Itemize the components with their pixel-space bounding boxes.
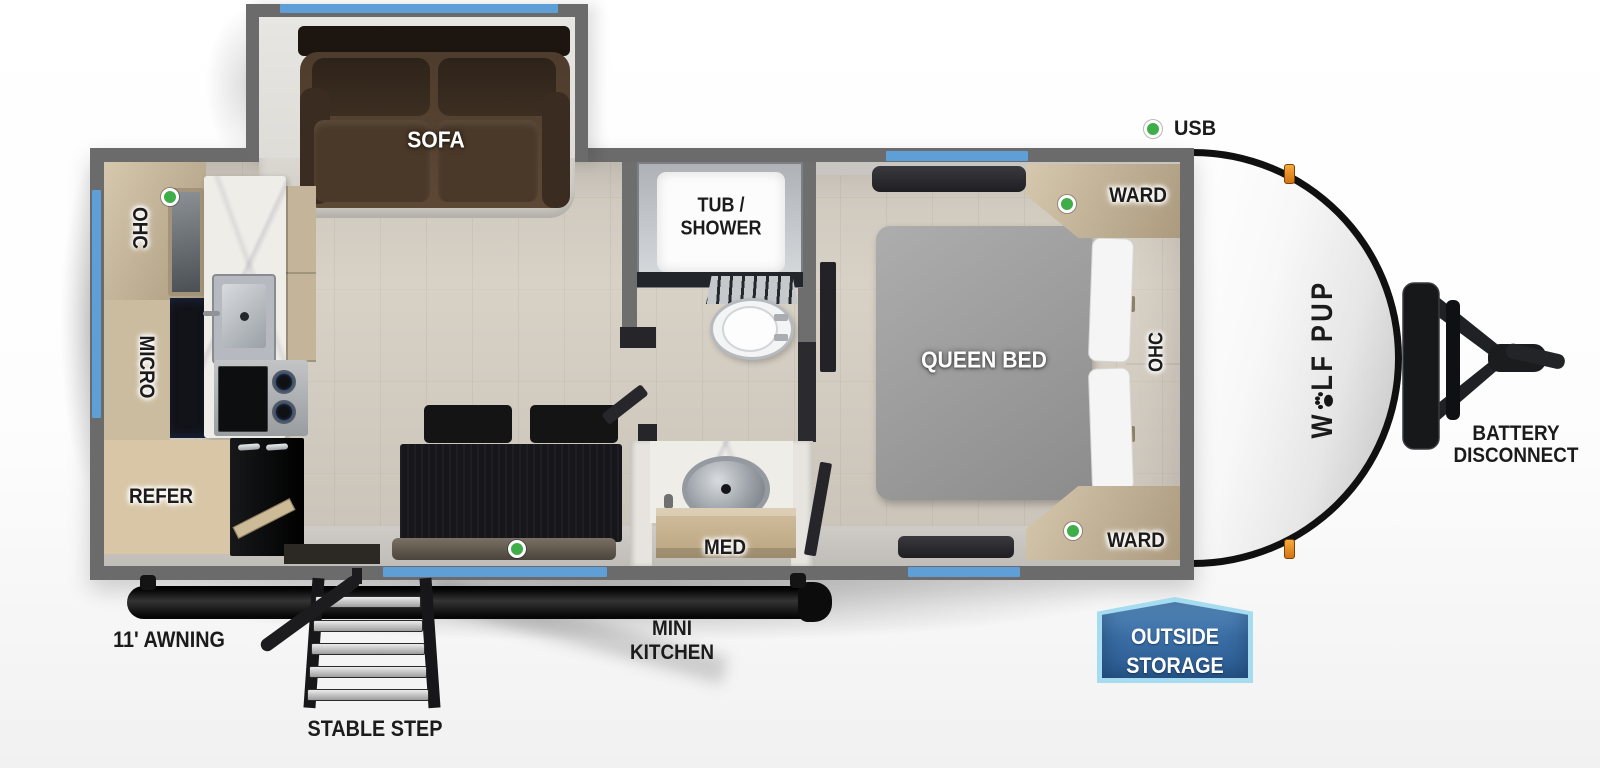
queen-bed-label: QUEEN BED	[921, 347, 1047, 374]
bedroom-door-panel	[820, 262, 836, 372]
ward-top-label: WARD	[1109, 184, 1167, 208]
refer-label: REFER	[129, 485, 193, 509]
refrigerator	[230, 438, 304, 556]
med-left-wall	[630, 441, 652, 566]
window-bedroom-top	[886, 151, 1028, 161]
marker-light-top-icon	[1284, 164, 1295, 184]
bath-door-leaf	[798, 342, 816, 442]
battery-disconnect-label: BATTERY DISCONNECT	[1454, 423, 1579, 467]
mini-kitchen-label: MINI KITCHEN	[630, 617, 714, 665]
awning-roller-endcap	[798, 582, 832, 622]
brand-logo-suffix: LF PUP	[1306, 280, 1339, 391]
kitchen-ohc-label: OHC	[127, 207, 151, 249]
usb-legend-label: USB	[1174, 117, 1216, 141]
brand-logo-prefix: W	[1306, 411, 1339, 438]
awning-bracket-icon	[140, 575, 156, 590]
battery-line1: BATTERY	[1454, 423, 1579, 445]
mini-kitchen-line1: MINI	[630, 617, 714, 641]
floorplan-canvas: WLF PUP SOFA OHC MICRO	[0, 0, 1600, 768]
ward-bottom-label: WARD	[1107, 529, 1165, 553]
toilet-hinge-icon	[774, 314, 788, 321]
step-rung	[309, 666, 427, 678]
kitchen-upper-cabinets	[286, 186, 316, 362]
sofa-back-cushion	[438, 58, 556, 116]
marker-light-bottom-icon	[1284, 539, 1295, 559]
paw-print-icon	[1316, 392, 1334, 409]
pillow-icon	[1088, 237, 1134, 362]
battery-line2: DISCONNECT	[1454, 445, 1579, 467]
awning-label: 11' AWNING	[113, 627, 225, 653]
bath-left-wall	[622, 162, 637, 330]
step-rung	[313, 620, 423, 632]
toilet-hinge-icon	[774, 334, 788, 341]
micro-label: MICRO	[134, 336, 158, 399]
dinette-stool	[424, 405, 512, 443]
bedroom-shelf-bottom	[898, 536, 1014, 558]
window-left-wall	[92, 190, 101, 418]
entry-threshold	[284, 544, 380, 564]
step-rung	[307, 689, 429, 701]
awning-roller	[127, 586, 829, 619]
outside-storage-badge-fill: OUTSIDE STORAGE	[1102, 602, 1248, 678]
med-sink-drain	[721, 484, 731, 494]
outside-storage-line1: OUTSIDE	[1109, 622, 1240, 651]
step-rung	[311, 643, 425, 655]
door-jamb	[638, 424, 657, 441]
window-living-bottom	[383, 567, 607, 577]
kitchen-sink-drain	[240, 312, 249, 321]
pillow-icon	[1088, 367, 1134, 492]
awning-bracket-icon	[790, 573, 806, 588]
slideout-window	[280, 4, 558, 13]
burner-icon	[272, 370, 296, 394]
usb-marker-kitchen	[161, 188, 179, 206]
tub-label-line1: TUB /	[698, 195, 745, 218]
usb-marker-ward-bottom	[1064, 522, 1082, 540]
usb-legend-dot	[1144, 120, 1162, 138]
usb-marker-ward-top	[1058, 195, 1076, 213]
dinette-front-bar	[392, 538, 616, 560]
step-handrail-post	[352, 568, 362, 584]
outside-storage-badge: OUTSIDE STORAGE	[1097, 597, 1253, 683]
door-jamb	[620, 327, 656, 348]
usb-marker-dinette	[508, 540, 526, 558]
oven-door	[218, 366, 268, 432]
mini-kitchen-line2: KITCHEN	[630, 641, 714, 665]
toilet-seat	[722, 306, 778, 352]
window-bedroom-bottom	[908, 567, 1020, 577]
dinette-table	[400, 444, 622, 542]
bedroom-shelf-top	[872, 166, 1026, 192]
kitchen-faucet-icon	[203, 311, 220, 316]
bedroom-ohc-label: OHC	[1146, 332, 1169, 372]
burner-icon	[272, 400, 296, 424]
brand-logo: WLF PUP	[1306, 240, 1338, 478]
stable-step-label: STABLE STEP	[308, 716, 443, 742]
med-label: MED	[704, 536, 746, 560]
sofa-label: SOFA	[407, 127, 465, 154]
sofa-armrest	[542, 92, 570, 208]
med-faucet-icon	[664, 494, 673, 508]
outside-storage-line2: STORAGE	[1109, 651, 1240, 680]
tub-label-line2: SHOWER	[681, 218, 762, 241]
